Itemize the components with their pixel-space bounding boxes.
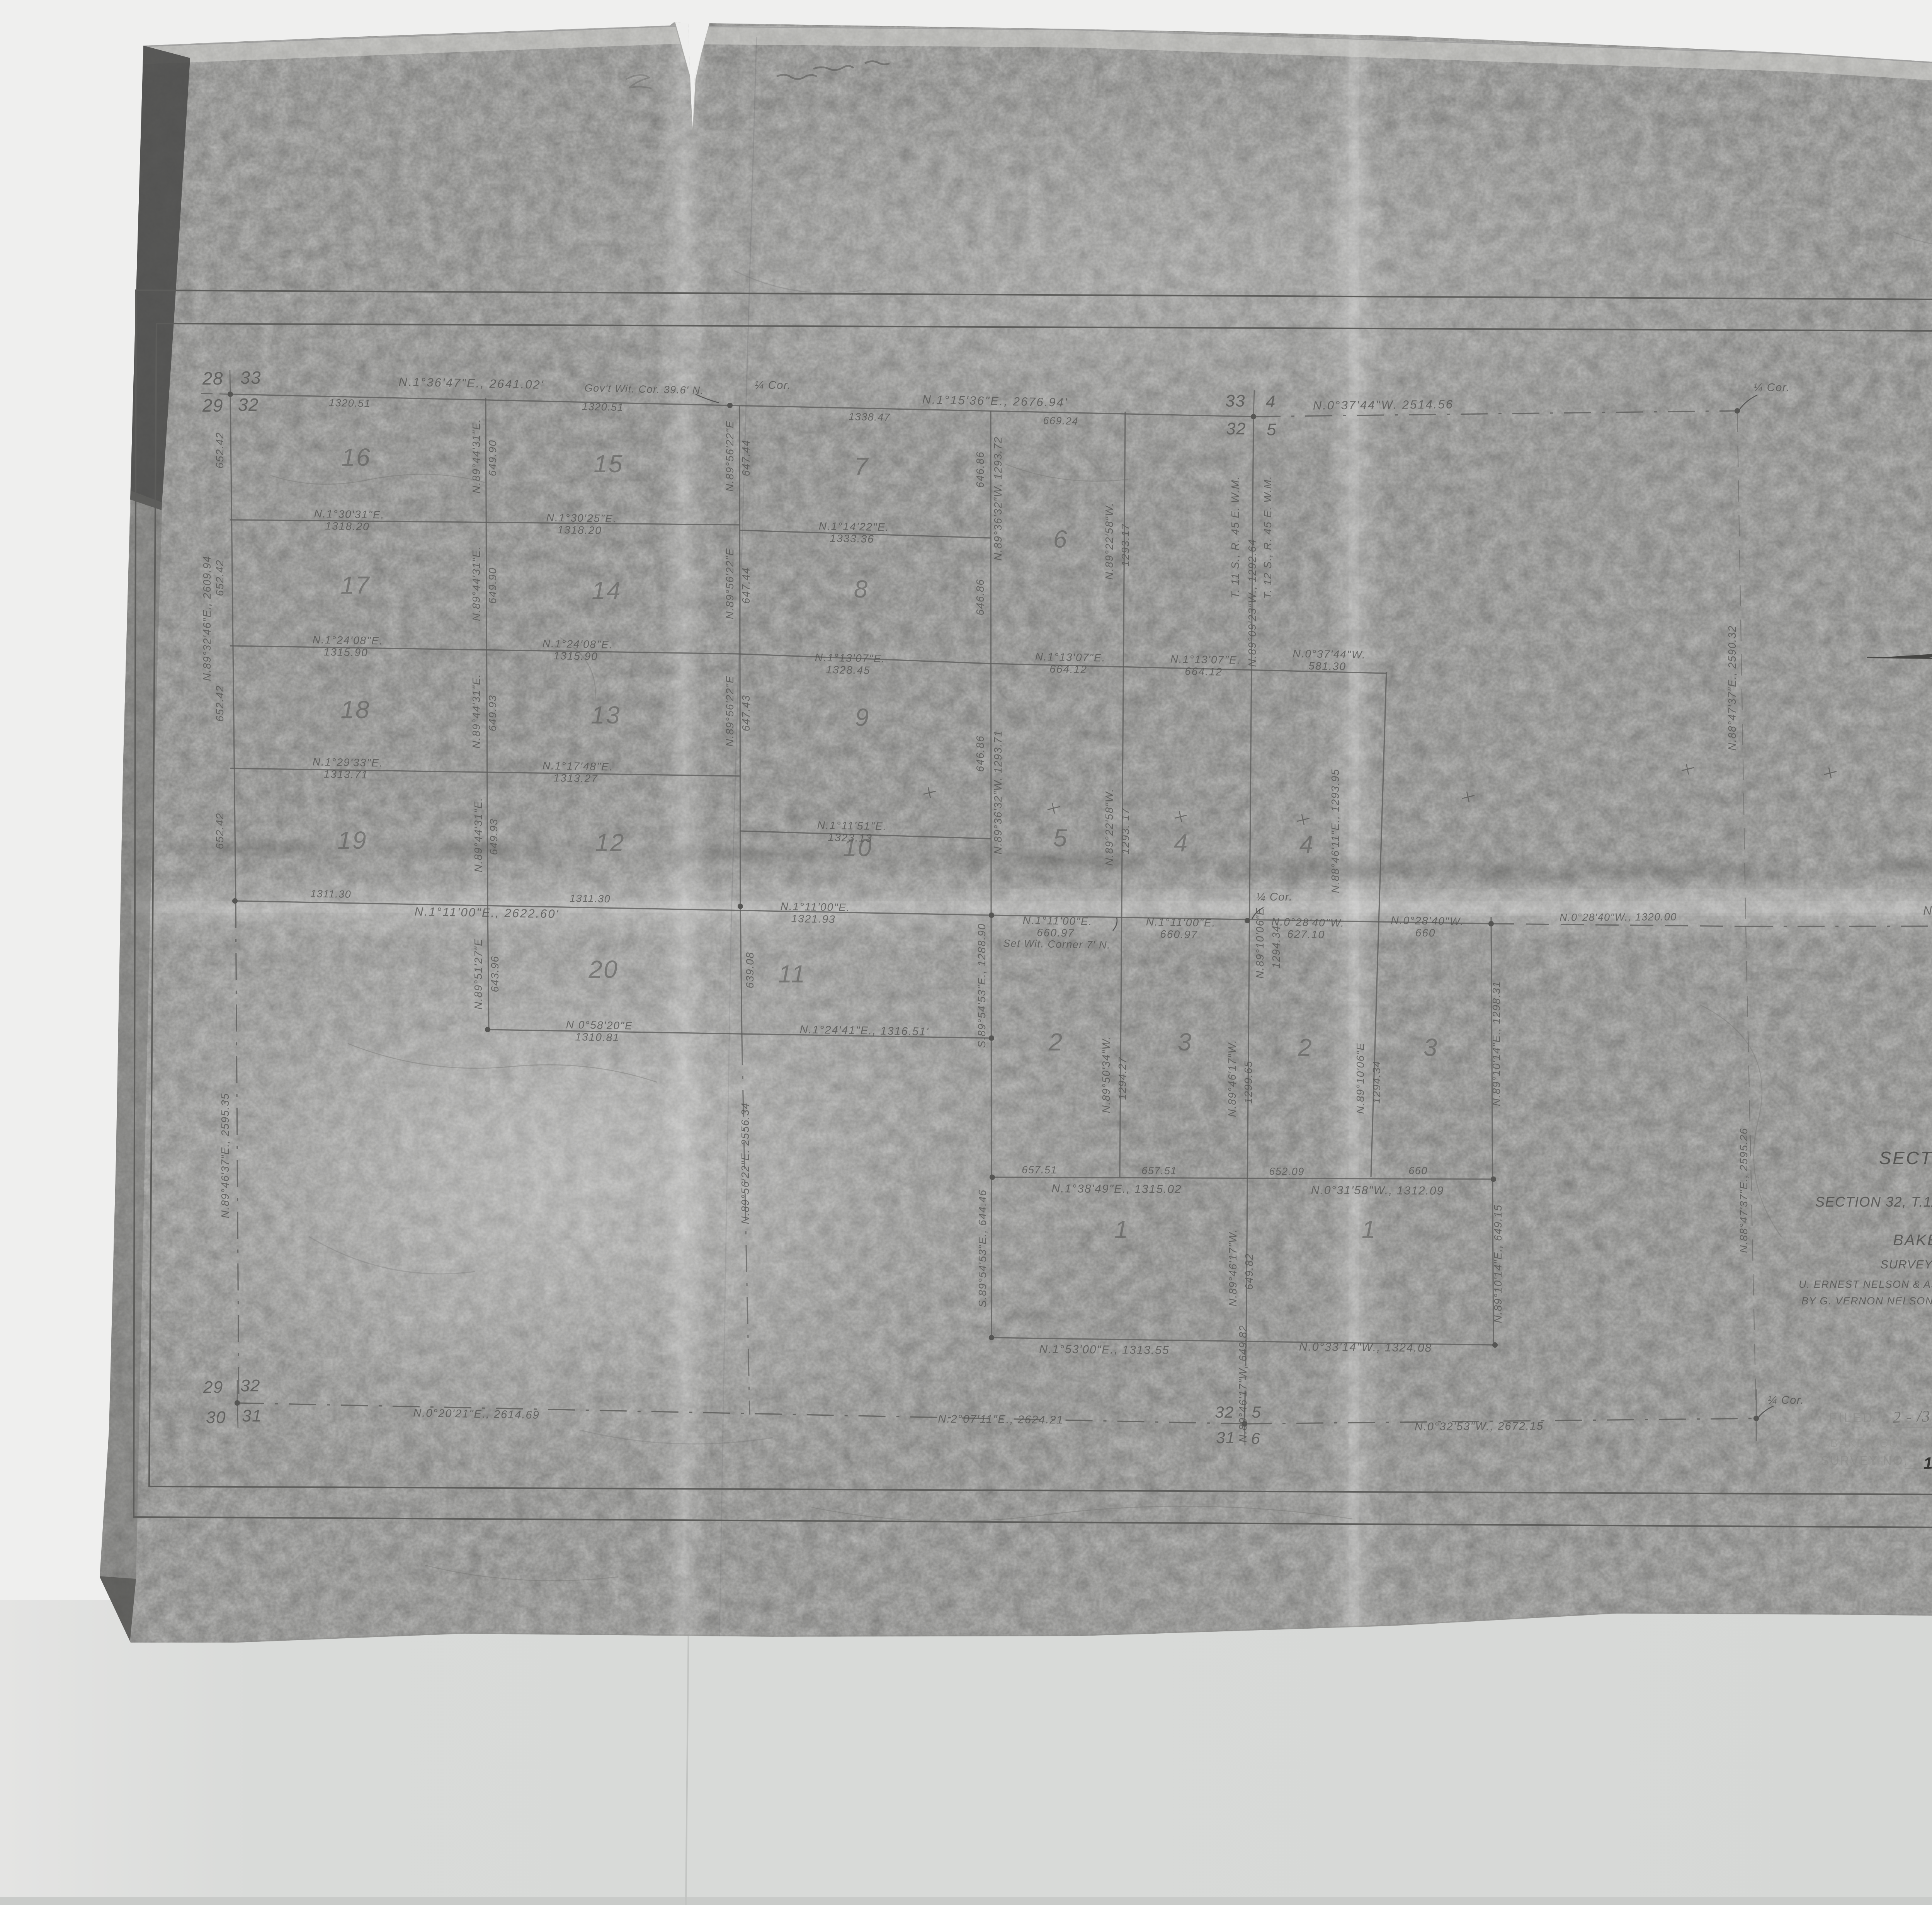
svg-text:12: 12 [595,829,625,856]
svg-text:9: 9 [855,703,870,731]
svg-text:647.44: 647.44 [740,440,752,477]
svg-text:33: 33 [1225,392,1245,410]
svg-text:1311.30: 1311.30 [570,892,611,905]
svg-text:669.24: 669.24 [1043,415,1078,427]
svg-text:1294.34: 1294.34 [1371,1061,1383,1104]
svg-text:647.44: 647.44 [740,567,752,604]
svg-text:N.1°24'41"E., 1316.51': N.1°24'41"E., 1316.51' [799,1023,929,1038]
svg-text:581.30: 581.30 [1308,660,1346,672]
svg-text:N.1°30'25"E.: N.1°30'25"E. [546,511,617,524]
svg-text:1294.34: 1294.34 [1270,925,1282,969]
svg-text:643.96: 643.96 [489,956,501,993]
svg-text:1321.93: 1321.93 [791,912,836,925]
svg-text:29: 29 [202,395,223,415]
svg-text:1318.20: 1318.20 [557,524,602,536]
svg-text:SECTIONAL SUBDIVISION: SECTIONAL SUBDIVISION [1879,1148,1932,1168]
svg-text:657.51: 657.51 [1141,1165,1177,1176]
svg-text:29: 29 [203,1378,223,1397]
svg-text:6: 6 [1053,525,1068,553]
svg-text:N.89°46'17"W, 649.82: N.89°46'17"W, 649.82 [1237,1325,1249,1443]
svg-text:N.89°50'34"W.: N.89°50'34"W. [1100,1036,1112,1113]
svg-text:646.86: 646.86 [974,579,986,616]
svg-text:1310.81: 1310.81 [575,1031,620,1044]
svg-text:N.89°44'31"E.: N.89°44'31"E. [470,546,482,621]
svg-text:660.97: 660.97 [1037,926,1075,939]
svg-text:1315.90: 1315.90 [323,646,368,659]
svg-text:N.89°44'31"E.: N.89°44'31"E. [472,797,484,872]
svg-text:N.89°44'31"E.: N.89°44'31"E. [470,419,482,494]
svg-text:5: 5 [1267,420,1277,439]
svg-text:N.89°46'17"W.: N.89°46'17"W. [1226,1040,1238,1117]
svg-text:Set Wit. Corner 7' N.: Set Wit. Corner 7' N. [1003,938,1111,951]
svg-text:627.10: 627.10 [1287,928,1325,941]
svg-text:N.0°32'53"W., 2672.15: N.0°32'53"W., 2672.15 [1415,1420,1544,1433]
svg-text:1333.36: 1333.36 [830,532,874,545]
svg-text:N.1°11'00"E.: N.1°11'00"E. [1023,914,1093,927]
svg-text:13: 13 [591,701,621,729]
svg-text:1293. 17: 1293. 17 [1119,808,1131,855]
svg-text:4: 4 [1266,392,1276,411]
svg-text:33: 33 [240,368,261,388]
svg-text:5: 5 [1053,824,1068,852]
svg-text:N.1°38'49"E., 1315.02: N.1°38'49"E., 1315.02 [1051,1182,1182,1196]
svg-text:4: 4 [1174,829,1189,857]
svg-text:N.89°36'32"W. 1293.72: N.89°36'32"W. 1293.72 [992,436,1004,561]
svg-text:N.89°10'14"E., 1298.31: N.89°10'14"E., 1298.31 [1490,981,1502,1106]
svg-text:1313.27: 1313.27 [553,772,598,785]
svg-text:N.0°20'21"E., 2614.69: N.0°20'21"E., 2614.69 [413,1407,540,1422]
svg-text:U. ERNEST NELSON & ASSOCIAT: U. ERNEST NELSON & ASSOCIATES [1799,1279,1932,1290]
svg-text:1320.51: 1320.51 [329,397,371,409]
svg-text:¼ Cor.: ¼ Cor. [1256,891,1293,903]
svg-text:5: 5 [1252,1403,1262,1421]
svg-text:660: 660 [1415,927,1436,939]
svg-text:N.89°32'46"E., 2609.94: N.89°32'46"E., 2609.94 [201,556,213,681]
svg-text:3: 3 [1423,1033,1439,1061]
svg-text:1318.20: 1318.20 [325,520,370,533]
svg-text:14: 14 [592,577,621,604]
svg-text:660.97: 660.97 [1160,928,1198,941]
svg-text:1299.65: 1299.65 [1242,1061,1254,1104]
svg-text:N.89°46'37"E., 2595.35: N.89°46'37"E., 2595.35 [219,1093,231,1218]
svg-text:N.0°37'44"W.: N.0°37'44"W. [1293,647,1366,661]
svg-text:N.0°37'44"W. 2514.56: N.0°37'44"W. 2514.56 [1313,397,1454,412]
svg-text:664.12: 664.12 [1049,663,1087,676]
svg-text:N.1°30'31"E.: N.1°30'31"E. [314,507,385,521]
svg-text:1: 1 [1114,1216,1129,1243]
svg-text:649.82: 649.82 [1243,1253,1255,1290]
svg-text:N.0°31'58"W., 1312.09: N.0°31'58"W., 1312.09 [1311,1184,1444,1197]
svg-text:S.89°54'53"E., 1288.90: S.89°54'53"E., 1288.90 [976,923,988,1048]
svg-text:N.0°33'14"W., 1324.08: N.0°33'14"W., 1324.08 [1299,1340,1432,1354]
svg-text:32: 32 [1226,419,1246,438]
svg-text:30: 30 [206,1408,226,1427]
svg-text:2: 2 [1298,1033,1313,1061]
svg-text:652.42: 652.42 [214,432,226,469]
svg-text:N.89°10'14"E., 649.15: N.89°10'14"E., 649.15 [1492,1204,1504,1323]
svg-text:¼ Cor.: ¼ Cor. [1768,1394,1804,1406]
svg-text:649.90: 649.90 [486,440,498,477]
svg-text:1315.90: 1315.90 [553,650,598,662]
svg-text:N.88°47'37"E., 2590.32: N.88°47'37"E., 2590.32 [1726,625,1738,751]
svg-text:649.93: 649.93 [486,695,498,732]
svg-text:N.1°14'22"E.: N.1°14'22"E. [819,520,889,533]
svg-text:18: 18 [340,696,370,724]
svg-text:N.1°24'08"E.: N.1°24'08"E. [313,633,383,647]
svg-text:N 0°58'20"E: N 0°58'20"E [566,1018,633,1032]
svg-text:6: 6 [1251,1429,1261,1447]
svg-text:1311.30: 1311.30 [310,888,352,900]
svg-text:652.09: 652.09 [1269,1166,1304,1177]
svg-text:SURVEYED; APRIL , MAY & JUN: SURVEYED; APRIL , MAY & JUNE , 1949 [1880,1258,1932,1271]
svg-text:664.12: 664.12 [1185,665,1223,678]
svg-text:S.89°54'53"E., 644.46: S.89°54'53"E., 644.46 [976,1189,988,1307]
svg-text:N.1°13'07"E.: N.1°13'07"E. [1170,653,1241,666]
svg-text:SECTION 32, T.11 S., R.45 E.: SECTION 32, T.11 S., R.45 E. & SECTION 5… [1815,1194,1932,1210]
svg-text:N.89°56'22"E: N.89°56'22"E [724,420,736,492]
svg-text:N.1°11'00"E., 2622.60': N.1°11'00"E., 2622.60' [415,905,560,921]
svg-text:N.89°10'06"E: N.89°10'06"E [1254,907,1266,979]
svg-text:32: 32 [1215,1403,1234,1421]
svg-text:20: 20 [588,955,618,983]
svg-text:N.0°28'40"W., 1320.00: N.0°28'40"W., 1320.00 [1560,911,1677,923]
svg-text:19: 19 [337,826,367,854]
svg-text:8: 8 [854,575,869,603]
svg-text:N.89°22'58"W.: N.89°22'58"W. [1103,788,1115,866]
svg-text:N.89°56'22"E: N.89°56'22"E [724,548,736,620]
svg-text:11: 11 [778,960,806,988]
svg-text:17: 17 [340,571,370,599]
svg-text:¼ Cor.: ¼ Cor. [1753,381,1790,394]
svg-text:N.0°28'40"W.: N.0°28'40"W. [1391,914,1464,927]
svg-text:646.86: 646.86 [974,451,986,488]
svg-text:N.89°46'17"W.: N.89°46'17"W. [1227,1229,1239,1307]
svg-text:N.0°28'40"W.: N.0°28'40"W. [1271,916,1345,929]
svg-text:N.88°47'37"E., 2595.26: N.88°47'37"E., 2595.26 [1738,1128,1750,1253]
svg-text:660: 660 [1408,1165,1428,1176]
svg-text:649.93: 649.93 [488,819,500,855]
svg-text:BAKER COUNTY, OREGON: BAKER COUNTY, OREGON [1893,1232,1932,1249]
svg-text:28: 28 [202,368,223,388]
svg-text:¼ Cor.: ¼ Cor. [755,379,791,392]
svg-text:N.89°22'58"W.: N.89°22'58"W. [1103,502,1115,580]
svg-text:1294.27: 1294.27 [1116,1057,1128,1100]
svg-text:N.2°07'11"E., 2624.21: N.2°07'11"E., 2624.21 [938,1413,1064,1427]
svg-text:31: 31 [242,1406,262,1425]
svg-text:N.89°56'22"E: N.89°56'22"E [724,676,736,747]
svg-text:1328.45: 1328.45 [826,664,871,676]
svg-text:SURVEY NO.: SURVEY NO. [1821,1454,1908,1467]
svg-text:N.89°09'23"W., 1292.64: N.89°09'23"W., 1292.64 [1246,539,1258,667]
svg-text:N.1°13'07"E.: N.1°13'07"E. [1035,650,1106,664]
svg-text:1313.71: 1313.71 [323,768,368,781]
svg-text:N.1°11'00"E.: N.1°11'00"E. [1146,916,1216,929]
svg-text:15: 15 [594,450,623,478]
svg-text:32: 32 [238,395,259,415]
svg-text:2: 2 [1048,1028,1064,1056]
svg-text:N.0°28'40"W., 2697.92: N.0°28'40"W., 2697.92 [1923,902,1932,917]
svg-text:2 - /3 - 75: 2 - /3 - 75 [1893,1406,1932,1427]
svg-text:4: 4 [1299,831,1315,858]
svg-text:BAKER COUNTY SURVEYOR: BAKER COUNTY SURVEYOR [1830,1437,1932,1450]
svg-text:1338.47: 1338.47 [849,411,891,423]
svg-text:1: 1 [1362,1216,1377,1243]
svg-text:649.90: 649.90 [486,567,498,604]
svg-text:639.08: 639.08 [744,952,756,989]
svg-text:T. 11 S., R. 45 E. W.M.: T. 11 S., R. 45 E. W.M. [1229,476,1241,599]
svg-text:N.89°10'06"E: N.89°10'06"E [1354,1043,1366,1114]
svg-text:N.1°11'00"E.: N.1°11'00"E. [781,900,850,913]
svg-text:FILED: FILED [1829,1411,1874,1425]
svg-text:1293.17: 1293.17 [1119,523,1131,567]
svg-text:646.86: 646.86 [974,735,986,772]
svg-text:N.1°13'07"E.: N.1°13'07"E. [815,651,886,664]
svg-text:1320.51: 1320.51 [582,401,624,413]
svg-text:11- 45- 2: 11- 45- 2 [1923,1450,1932,1472]
svg-text:16: 16 [341,443,371,471]
svg-text:N.89°36'32"W. 1293.71: N.89°36'32"W. 1293.71 [992,730,1004,855]
svg-text:N.1°11'51"E.: N.1°11'51"E. [817,819,887,832]
svg-text:652.42: 652.42 [214,685,226,722]
svg-text:N.1°17'48"E.: N.1°17'48"E. [543,759,613,773]
svg-text:652.42: 652.42 [214,813,226,850]
svg-text:652.42: 652.42 [214,560,226,596]
svg-text:32: 32 [240,1376,260,1395]
svg-text:7: 7 [854,453,869,480]
svg-text:N.88°46'11"E., 1293.95: N.88°46'11"E., 1293.95 [1329,769,1341,893]
svg-text:647.43: 647.43 [740,695,752,732]
svg-text:10: 10 [843,834,872,861]
svg-text:N.1°53'00"E., 1313.55: N.1°53'00"E., 1313.55 [1039,1343,1170,1357]
svg-text:N.1°29'33"E.: N.1°29'33"E. [313,756,383,769]
svg-text:N.89°51'27"E: N.89°51'27"E [472,938,484,1010]
svg-text:31: 31 [1216,1428,1235,1447]
svg-text:N.89°56'22"E. 2556.34: N.89°56'22"E. 2556.34 [739,1103,751,1224]
svg-text:657.51: 657.51 [1022,1164,1057,1176]
svg-text:3: 3 [1178,1028,1193,1056]
svg-text:T. 12 S., R. 45 E. W.M.: T. 12 S., R. 45 E. W.M. [1262,476,1274,599]
svg-text:N.1°24'08"E.: N.1°24'08"E. [543,637,613,650]
svg-text:N.89°44'31"E.: N.89°44'31"E. [470,674,482,749]
svg-text:BY G. VERNON NELSON: BY G. VERNON NELSON [1801,1295,1932,1307]
